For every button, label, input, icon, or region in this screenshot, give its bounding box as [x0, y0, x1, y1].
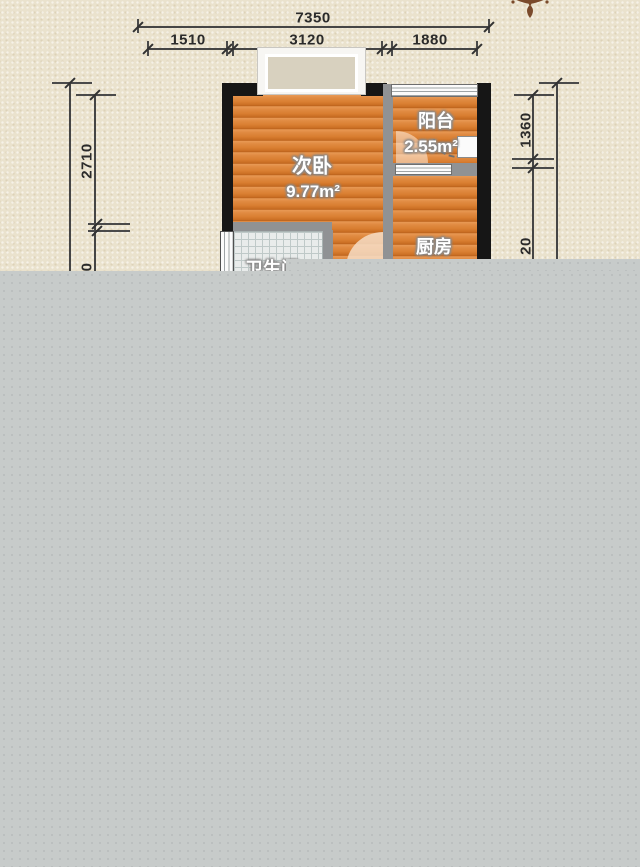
balcony-label: 阳台 [418, 107, 454, 133]
floral-ornament-icon [506, 0, 554, 22]
dim-line-left-inner [94, 95, 96, 271]
bay-window-sill [265, 54, 358, 92]
dim-line-right-outer [556, 83, 558, 259]
kitchen-label: 厨房 [416, 233, 452, 259]
dim-right-upper-label: 1360 [518, 112, 535, 147]
gray-overlay-main [0, 271, 640, 867]
balcony-area-label: 2.55m² [404, 137, 458, 157]
bathroom-window [220, 231, 234, 272]
bedroom-area-label: 9.77m² [286, 182, 340, 202]
dim-segment-label-1510: 1510 [170, 32, 205, 49]
floor-plan-screenshot: 次卧 9.77m² 阳台 2.55m² 厨房 卫生间 7350 1510 312… [0, 0, 640, 867]
dim-top-total-label: 7350 [295, 10, 330, 27]
dim-line-left-outer [69, 83, 71, 271]
dim-right-lower-label-fragment: 20 [518, 237, 535, 255]
balcony-top-window [391, 84, 478, 97]
wall-left [222, 83, 233, 232]
bedroom-label: 次卧 [292, 150, 332, 179]
dim-segment-label-3120: 3120 [289, 32, 324, 49]
balcony-kitchen-window [395, 164, 452, 175]
wall-right [477, 83, 491, 265]
dim-left-upper-label: 2710 [79, 143, 96, 178]
dim-segment-label-1880: 1880 [412, 32, 447, 49]
